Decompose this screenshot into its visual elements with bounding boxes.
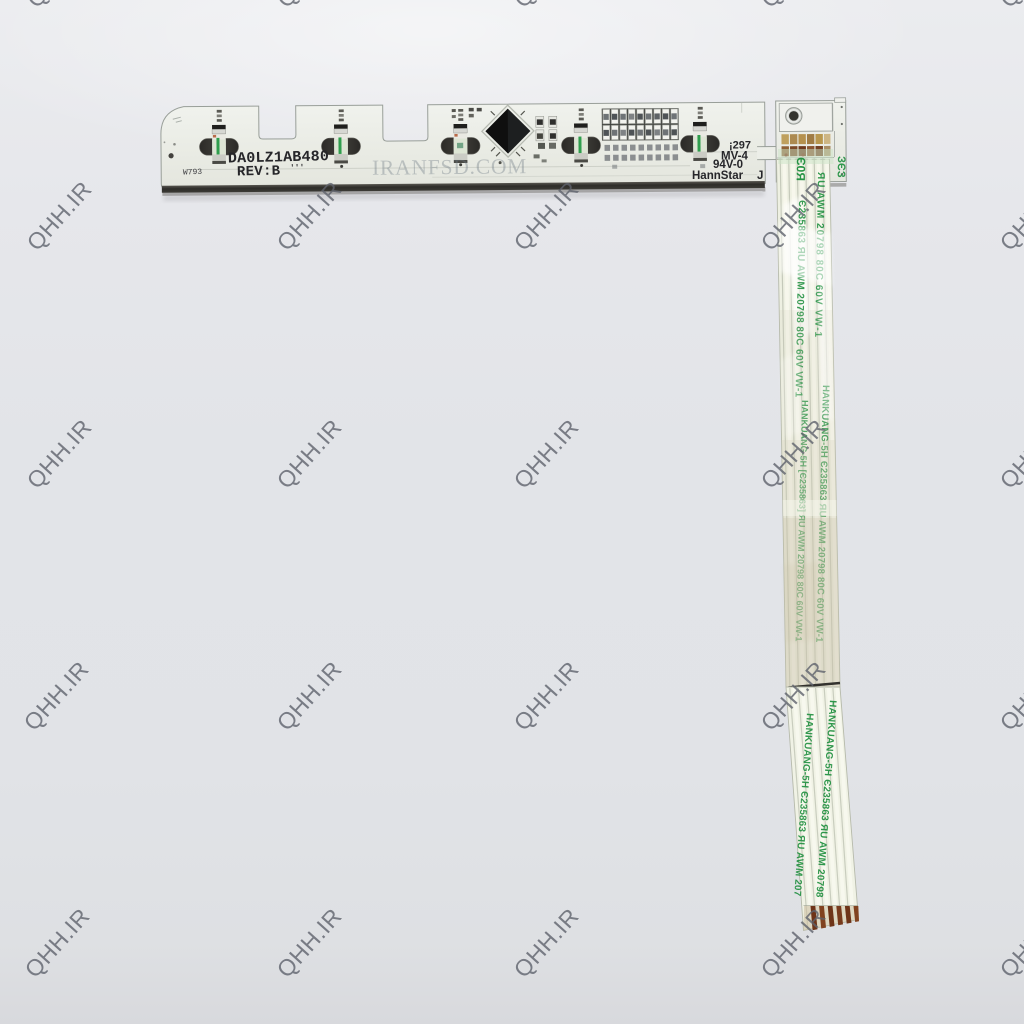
svg-text:W793: W793: [183, 168, 203, 178]
svg-text:Є0Я: Є0Я: [794, 157, 808, 181]
svg-text:REV:B: REV:B: [237, 164, 281, 181]
svg-text:''': ''': [290, 164, 305, 173]
svg-text:ЗЄЗ: ЗЄЗ: [835, 156, 847, 178]
svg-text:J: J: [757, 170, 763, 182]
svg-text:HannStar: HannStar: [692, 170, 744, 182]
